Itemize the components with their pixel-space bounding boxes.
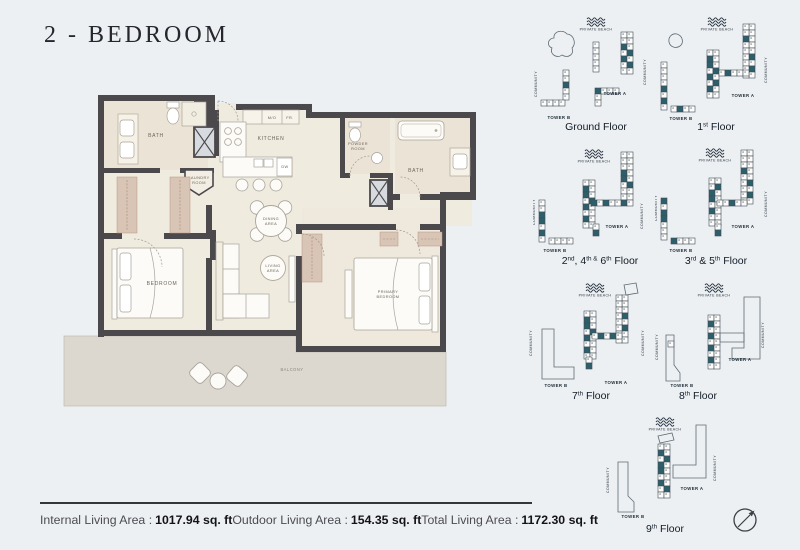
tower-b-label: TOWER B (669, 248, 692, 253)
room-label-bath2: BATH (408, 168, 424, 174)
tower-a-label: TOWER A (604, 91, 627, 96)
keyplan-diagram-f7: PRIVATE BEACHTOWER ATOWER BCOMMUNITYCOMM… (528, 281, 668, 405)
stat-outdoor-value: 154.35 sq. ft (351, 513, 421, 527)
stat-internal-value: 1017.94 sq. ft (155, 513, 232, 527)
keyplan-f8: PRIVATE BEACHTOWER ATOWER BCOMMUNITYCOMM… (650, 281, 790, 410)
tower-b-label: TOWER B (621, 514, 644, 519)
keyplan-diagram-f2-4-6: PRIVATE BEACHTOWER ATOWER BCOMMUNITYCOMM… (533, 146, 673, 270)
private-beach-label: PRIVATE BEACH (578, 160, 611, 164)
private-beach-label: PRIVATE BEACH (701, 28, 734, 32)
keyplan-f9: PRIVATE BEACHTOWER ATOWER BCOMMUNITYCOMM… (588, 416, 728, 545)
waves-icon (585, 150, 603, 158)
community-label: COMMUNITY (655, 334, 659, 360)
stat-internal-label: Internal Living Area : (40, 513, 152, 527)
room-label-bath1: BATH (148, 133, 164, 139)
tower-a-label: TOWER A (605, 380, 628, 385)
waves-icon (587, 18, 605, 26)
tower-b-label: TOWER B (543, 248, 566, 253)
keyplan-diagram-f3-5: PRIVATE BEACHTOWER ATOWER BCOMMUNITYCOMM… (655, 146, 795, 270)
tower-a-label: TOWER A (729, 357, 752, 362)
floor-name-label: 9th Floor (646, 523, 684, 535)
community-label: COMMUNITY (764, 57, 768, 83)
room-label-primary-2: BEDROOM (377, 294, 400, 299)
tower-b-label: TOWER B (669, 116, 692, 121)
community-label: COMMUNITY (606, 467, 610, 493)
stat-outdoor-label: Outdoor Living Area : (232, 513, 348, 527)
floor-plan: LAUNDRY ROOM BATH M (52, 88, 482, 420)
community-label: COMMUNITY (761, 322, 765, 348)
area-summary: Internal Living Area :1017.94 sq. ft Out… (40, 502, 532, 527)
room-label-bedroom: BEDROOM (147, 281, 178, 287)
stat-total-area: Total Living Area :1172.30 sq. ft (421, 513, 598, 527)
dining-area: DINING AREA (250, 201, 292, 242)
keyplan-first: PRIVATE BEACHTOWER ATOWER BCOMMUNITY1st … (655, 12, 795, 141)
floor-name-label: 7th Floor (572, 390, 610, 402)
room-label-powder-2: ROOM (351, 146, 365, 151)
private-beach-label: PRIVATE BEACH (699, 159, 732, 163)
waves-icon (708, 18, 726, 26)
community-label: COMMUNITY (640, 203, 644, 229)
bedroom: BEDROOM (112, 248, 183, 319)
private-beach-label: PRIVATE BEACH (579, 294, 612, 298)
tower-b-label: TOWER B (544, 383, 567, 388)
waves-icon (706, 149, 724, 157)
stat-total-label: Total Living Area : (421, 513, 518, 527)
tower-b-label: TOWER B (547, 115, 570, 120)
appliance-label-fridge: FR. (286, 115, 293, 120)
keyplan-diagram-f9: PRIVATE BEACHTOWER ATOWER BCOMMUNITYCOMM… (588, 416, 728, 540)
private-beach-label: PRIVATE BEACH (649, 428, 682, 432)
community-label: COMMUNITY (641, 330, 645, 356)
tower-a-label: TOWER A (732, 224, 755, 229)
keyplan-f2-4-6: PRIVATE BEACHTOWER ATOWER BCOMMUNITYCOMM… (533, 146, 673, 275)
keyplan-diagram-f8: PRIVATE BEACHTOWER ATOWER BCOMMUNITYCOMM… (650, 281, 790, 405)
keyplan-diagram-ground: PRIVATE BEACHTOWER ATOWER BCOMMUNITYCOMM… (533, 12, 673, 136)
stat-outdoor-area: Outdoor Living Area :154.35 sq. ft (232, 513, 421, 527)
keyplan-f7: PRIVATE BEACHTOWER ATOWER BCOMMUNITYCOMM… (528, 281, 668, 410)
primary-bedroom: PRIMARY BEDROOM (345, 256, 438, 332)
page-title: 2 - BEDROOM (44, 22, 229, 49)
stat-internal-area: Internal Living Area :1017.94 sq. ft (40, 513, 232, 527)
appliance-label-microwave-oven: M/O (268, 115, 277, 120)
community-label: COMMUNITY (713, 455, 717, 481)
private-beach-label: PRIVATE BEACH (698, 294, 731, 298)
tower-a-label: TOWER A (681, 486, 704, 491)
community-label: COMMUNITY (529, 330, 533, 356)
brochure-page: 2 - BEDROOM (0, 0, 800, 550)
community-label: COMMUNITY (533, 199, 536, 225)
room-label-dining-2: AREA (265, 221, 277, 226)
floor-name-label: 8th Floor (679, 390, 717, 402)
community-label: COMMUNITY (764, 191, 768, 217)
floor-name-label: 1st Floor (697, 121, 735, 133)
floor-name-label: 3rd & 5th Floor (685, 255, 748, 267)
keyplan-f3-5: PRIVATE BEACHTOWER ATOWER BCOMMUNITYCOMM… (655, 146, 795, 275)
community-label: COMMUNITY (534, 71, 538, 97)
appliance-label-dishwasher: DW (281, 164, 288, 169)
tower-a-label: TOWER A (606, 224, 629, 229)
waves-icon (586, 284, 604, 292)
community-label: COMMUNITY (643, 59, 647, 85)
room-label-balcony: BALCONY (280, 367, 303, 372)
room-label-laundry-2: ROOM (192, 180, 206, 185)
private-beach-label: PRIVATE BEACH (580, 28, 613, 32)
floor-name-label: 2nd, 4th & 6th Floor (562, 255, 639, 267)
compass-icon (720, 492, 772, 544)
waves-icon (656, 418, 674, 426)
floor-name-label: Ground Floor (565, 121, 627, 133)
waves-icon (705, 284, 723, 292)
keyplan-ground: PRIVATE BEACHTOWER ATOWER BCOMMUNITYCOMM… (533, 12, 673, 141)
tower-a-label: TOWER A (732, 93, 755, 98)
tower-b-label: TOWER B (670, 383, 693, 388)
community-label: COMMUNITY (655, 195, 658, 221)
keyplan-diagram-first: PRIVATE BEACHTOWER ATOWER BCOMMUNITY1st … (655, 12, 795, 136)
room-label-kitchen: KITCHEN (258, 136, 285, 142)
room-label-living-2: AREA (267, 268, 279, 273)
stat-total-value: 1172.30 sq. ft (521, 513, 598, 527)
